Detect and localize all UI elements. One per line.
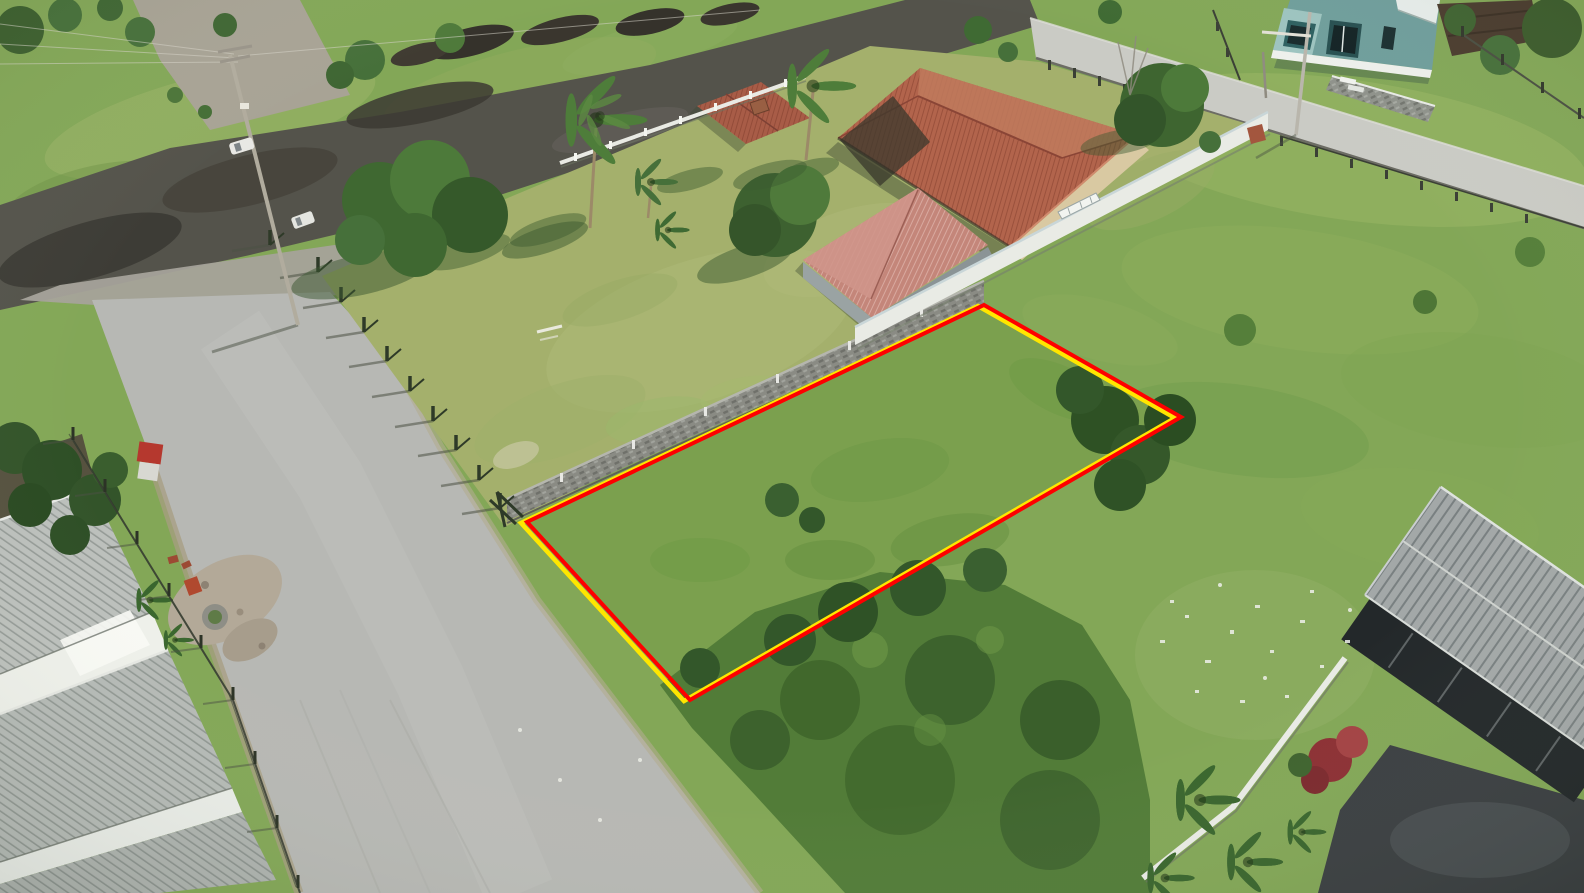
- aerial-photo: [0, 0, 1584, 893]
- photo-vignette: [0, 0, 1584, 893]
- aerial-photo-canvas: [0, 0, 1584, 893]
